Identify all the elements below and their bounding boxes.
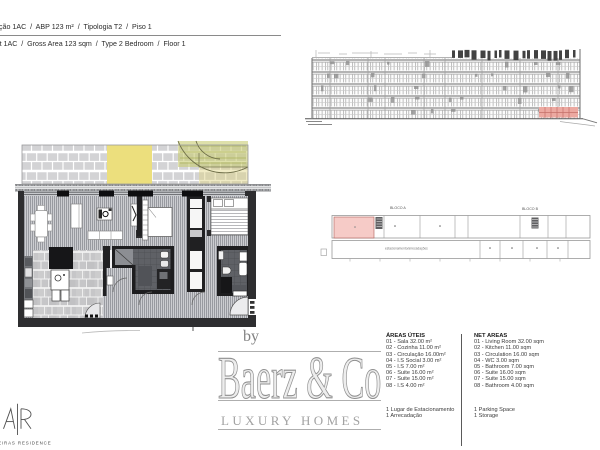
svg-text:estacionamento/arrecadações: estacionamento/arrecadações [385,247,428,251]
svg-text:REIRAS RESIDENCE: REIRAS RESIDENCE [0,441,52,446]
svg-text:BLOCO B: BLOCO B [522,207,539,211]
svg-text:BLOCO A: BLOCO A [390,206,406,210]
